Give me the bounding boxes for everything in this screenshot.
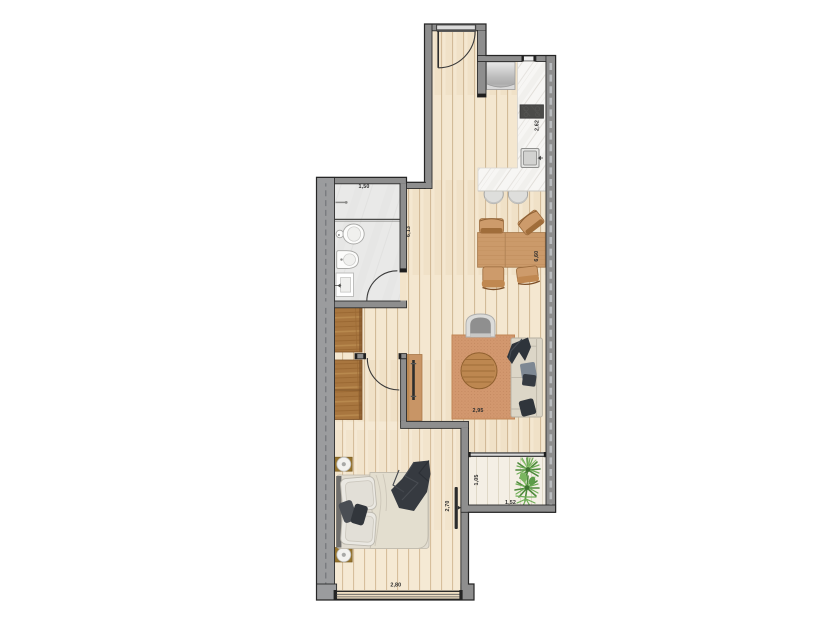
svg-text:2,80: 2,80 [390, 583, 401, 589]
svg-text:2,70: 2,70 [445, 501, 451, 512]
svg-text:1,52: 1,52 [505, 500, 516, 506]
svg-text:6,60: 6,60 [534, 251, 540, 262]
svg-text:1,50: 1,50 [359, 184, 370, 190]
svg-text:1,05: 1,05 [474, 475, 480, 486]
svg-text:6,13: 6,13 [406, 226, 412, 237]
svg-text:2,62: 2,62 [534, 120, 540, 131]
svg-text:2,95: 2,95 [473, 408, 484, 414]
